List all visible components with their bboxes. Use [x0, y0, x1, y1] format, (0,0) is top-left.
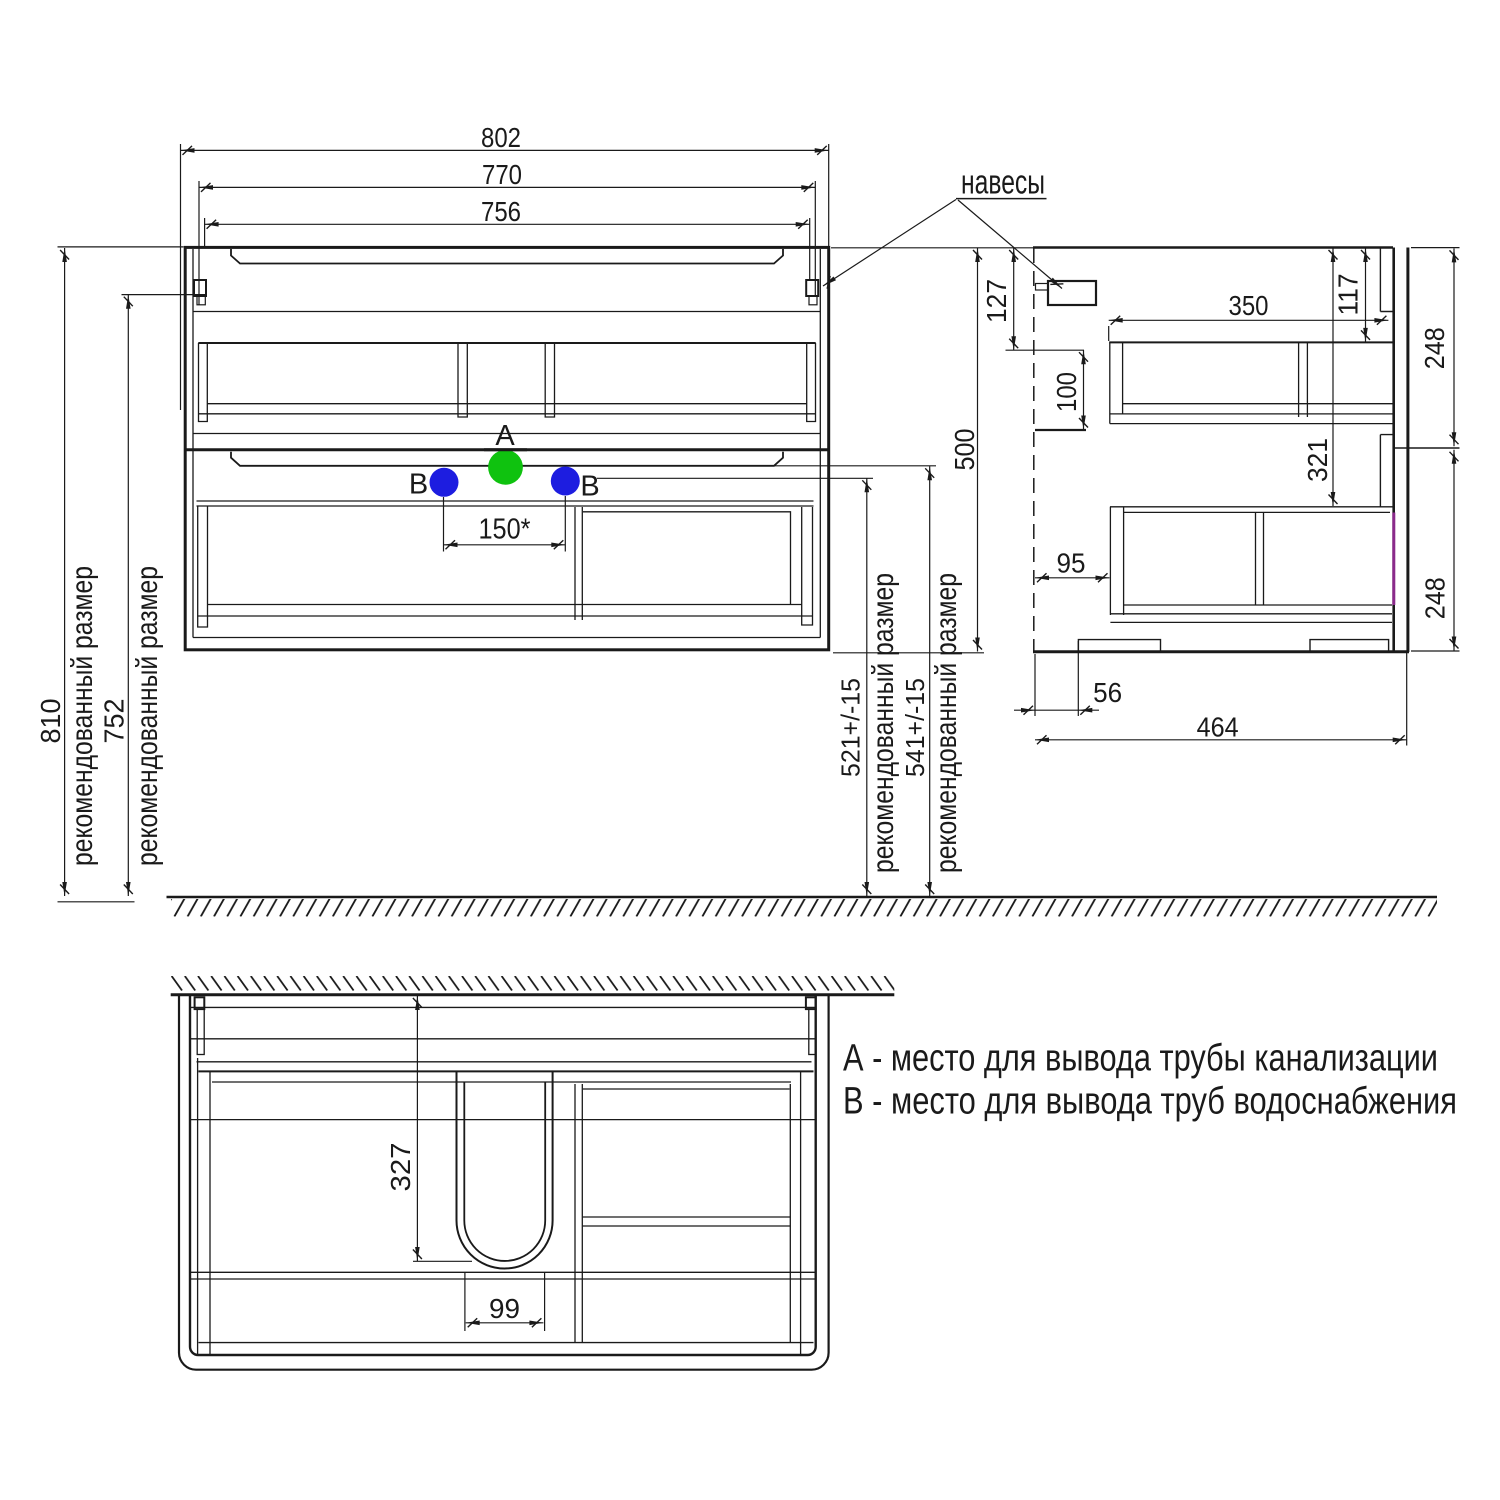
- svg-text:500: 500: [949, 429, 980, 471]
- svg-text:56: 56: [1093, 677, 1122, 708]
- svg-text:464: 464: [1197, 712, 1239, 743]
- svg-text:рекомендованный размер: рекомендованный размер: [867, 573, 900, 873]
- svg-text:752: 752: [99, 699, 130, 744]
- svg-text:95: 95: [1057, 548, 1086, 579]
- svg-text:541+/-15: 541+/-15: [900, 678, 930, 777]
- svg-text:327: 327: [385, 1143, 416, 1192]
- svg-text:B: B: [580, 471, 599, 503]
- svg-text:350: 350: [1229, 290, 1269, 321]
- svg-text:248: 248: [1419, 327, 1450, 369]
- svg-text:A: A: [495, 420, 515, 452]
- svg-text:рекомендованный размер: рекомендованный размер: [930, 573, 963, 873]
- svg-text:802: 802: [481, 122, 521, 153]
- svg-text:810: 810: [35, 699, 66, 744]
- svg-text:99: 99: [489, 1293, 520, 1324]
- svg-text:117: 117: [1333, 274, 1364, 316]
- svg-text:100: 100: [1051, 372, 1082, 412]
- svg-text:321: 321: [1302, 438, 1333, 482]
- svg-text:В - место для вывода труб водо: В - место для вывода труб водоснабжения: [843, 1081, 1457, 1123]
- svg-text:навесы: навесы: [961, 164, 1045, 202]
- svg-text:521+/-15: 521+/-15: [836, 678, 866, 777]
- svg-text:B: B: [409, 469, 428, 501]
- svg-text:рекомендованный размер: рекомендованный размер: [66, 566, 99, 866]
- svg-text:248: 248: [1419, 577, 1450, 619]
- svg-text:А - место для вывода трубы кан: А - место для вывода трубы канализации: [843, 1038, 1438, 1080]
- svg-text:150*: 150*: [479, 514, 531, 546]
- svg-text:770: 770: [482, 159, 522, 190]
- svg-text:756: 756: [481, 196, 521, 227]
- svg-text:рекомендованный размер: рекомендованный размер: [131, 566, 164, 866]
- svg-text:127: 127: [981, 279, 1012, 323]
